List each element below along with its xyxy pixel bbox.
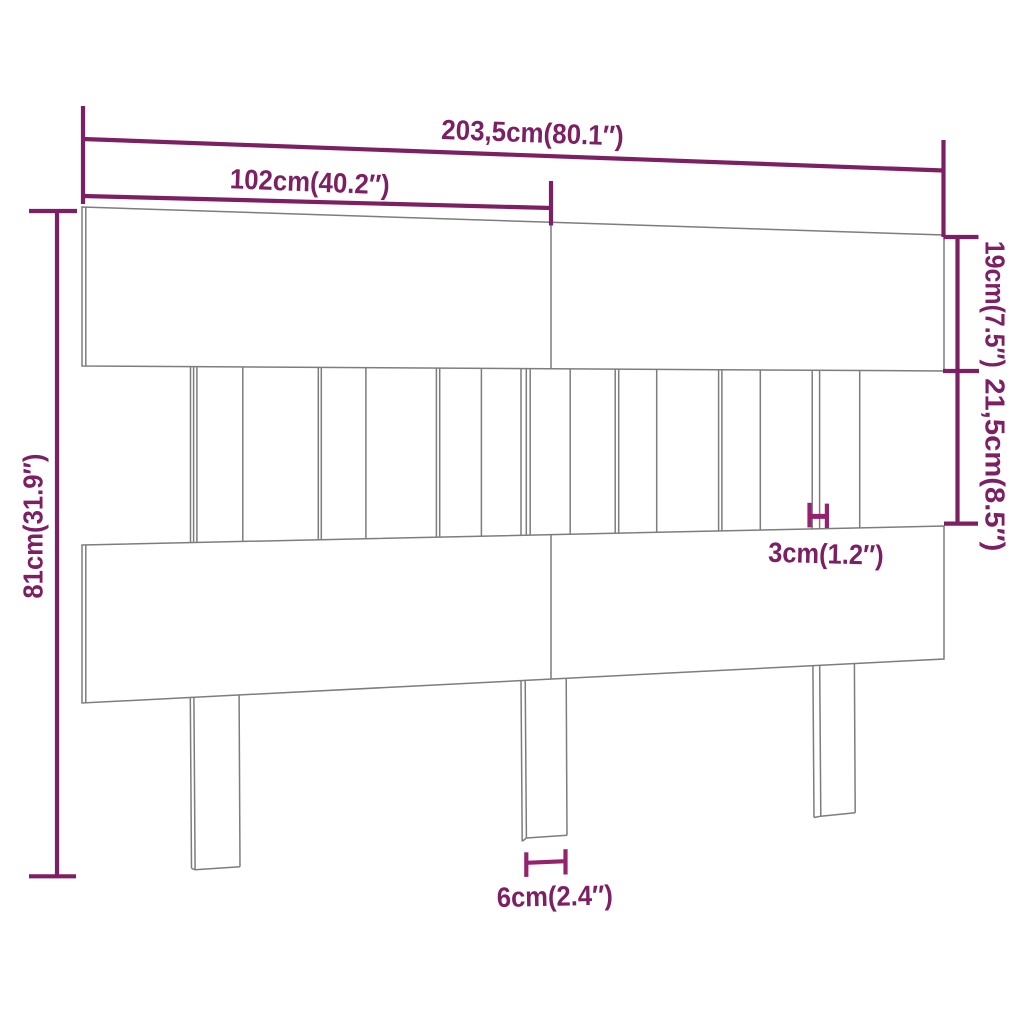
svg-text:81cm(31.9″): 81cm(31.9″) <box>18 454 49 599</box>
svg-text:19cm(7.5″): 19cm(7.5″) <box>980 241 1011 368</box>
svg-text:21,5cm(8.5″): 21,5cm(8.5″) <box>980 378 1011 551</box>
svg-text:203,5cm(80.1″): 203,5cm(80.1″) <box>441 114 624 152</box>
svg-text:6cm(2.4″): 6cm(2.4″) <box>496 880 613 913</box>
svg-text:102cm(40.2″): 102cm(40.2″) <box>229 163 390 200</box>
svg-text:3cm(1.2″): 3cm(1.2″) <box>768 537 884 571</box>
